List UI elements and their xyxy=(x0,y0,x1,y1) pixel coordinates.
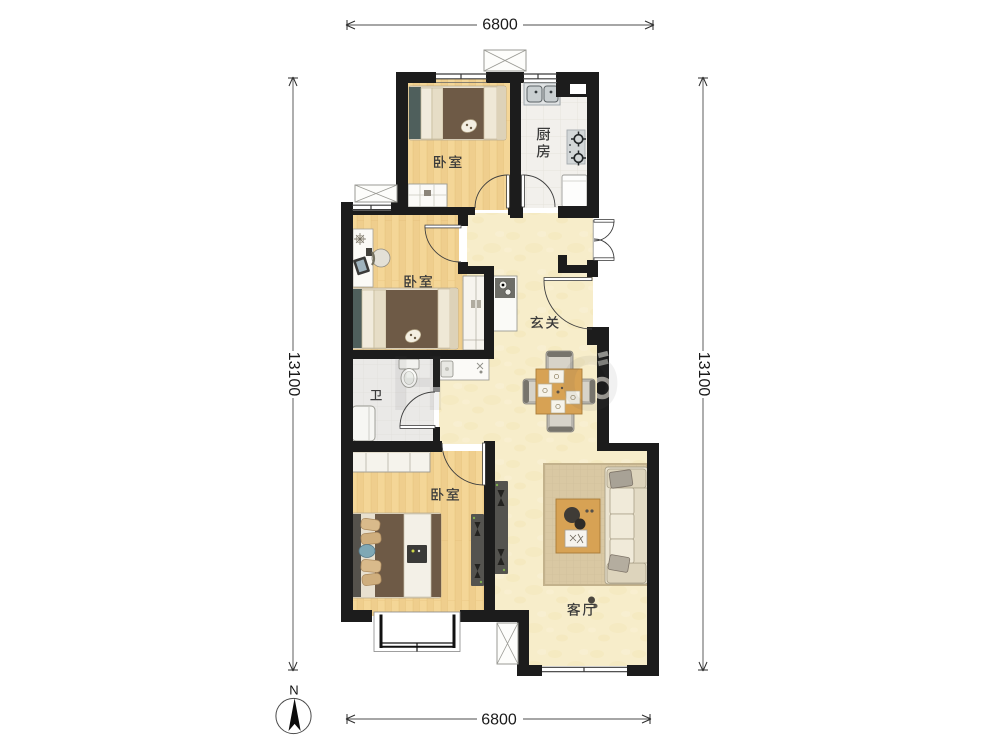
svg-text:H: H xyxy=(390,339,446,427)
svg-text:13100: 13100 xyxy=(285,352,302,397)
svg-text:13100: 13100 xyxy=(695,352,712,397)
svg-text:O: O xyxy=(560,339,621,427)
svg-text:6800: 6800 xyxy=(481,712,517,729)
svg-text:N: N xyxy=(289,683,298,698)
svg-text:6800: 6800 xyxy=(482,17,518,34)
